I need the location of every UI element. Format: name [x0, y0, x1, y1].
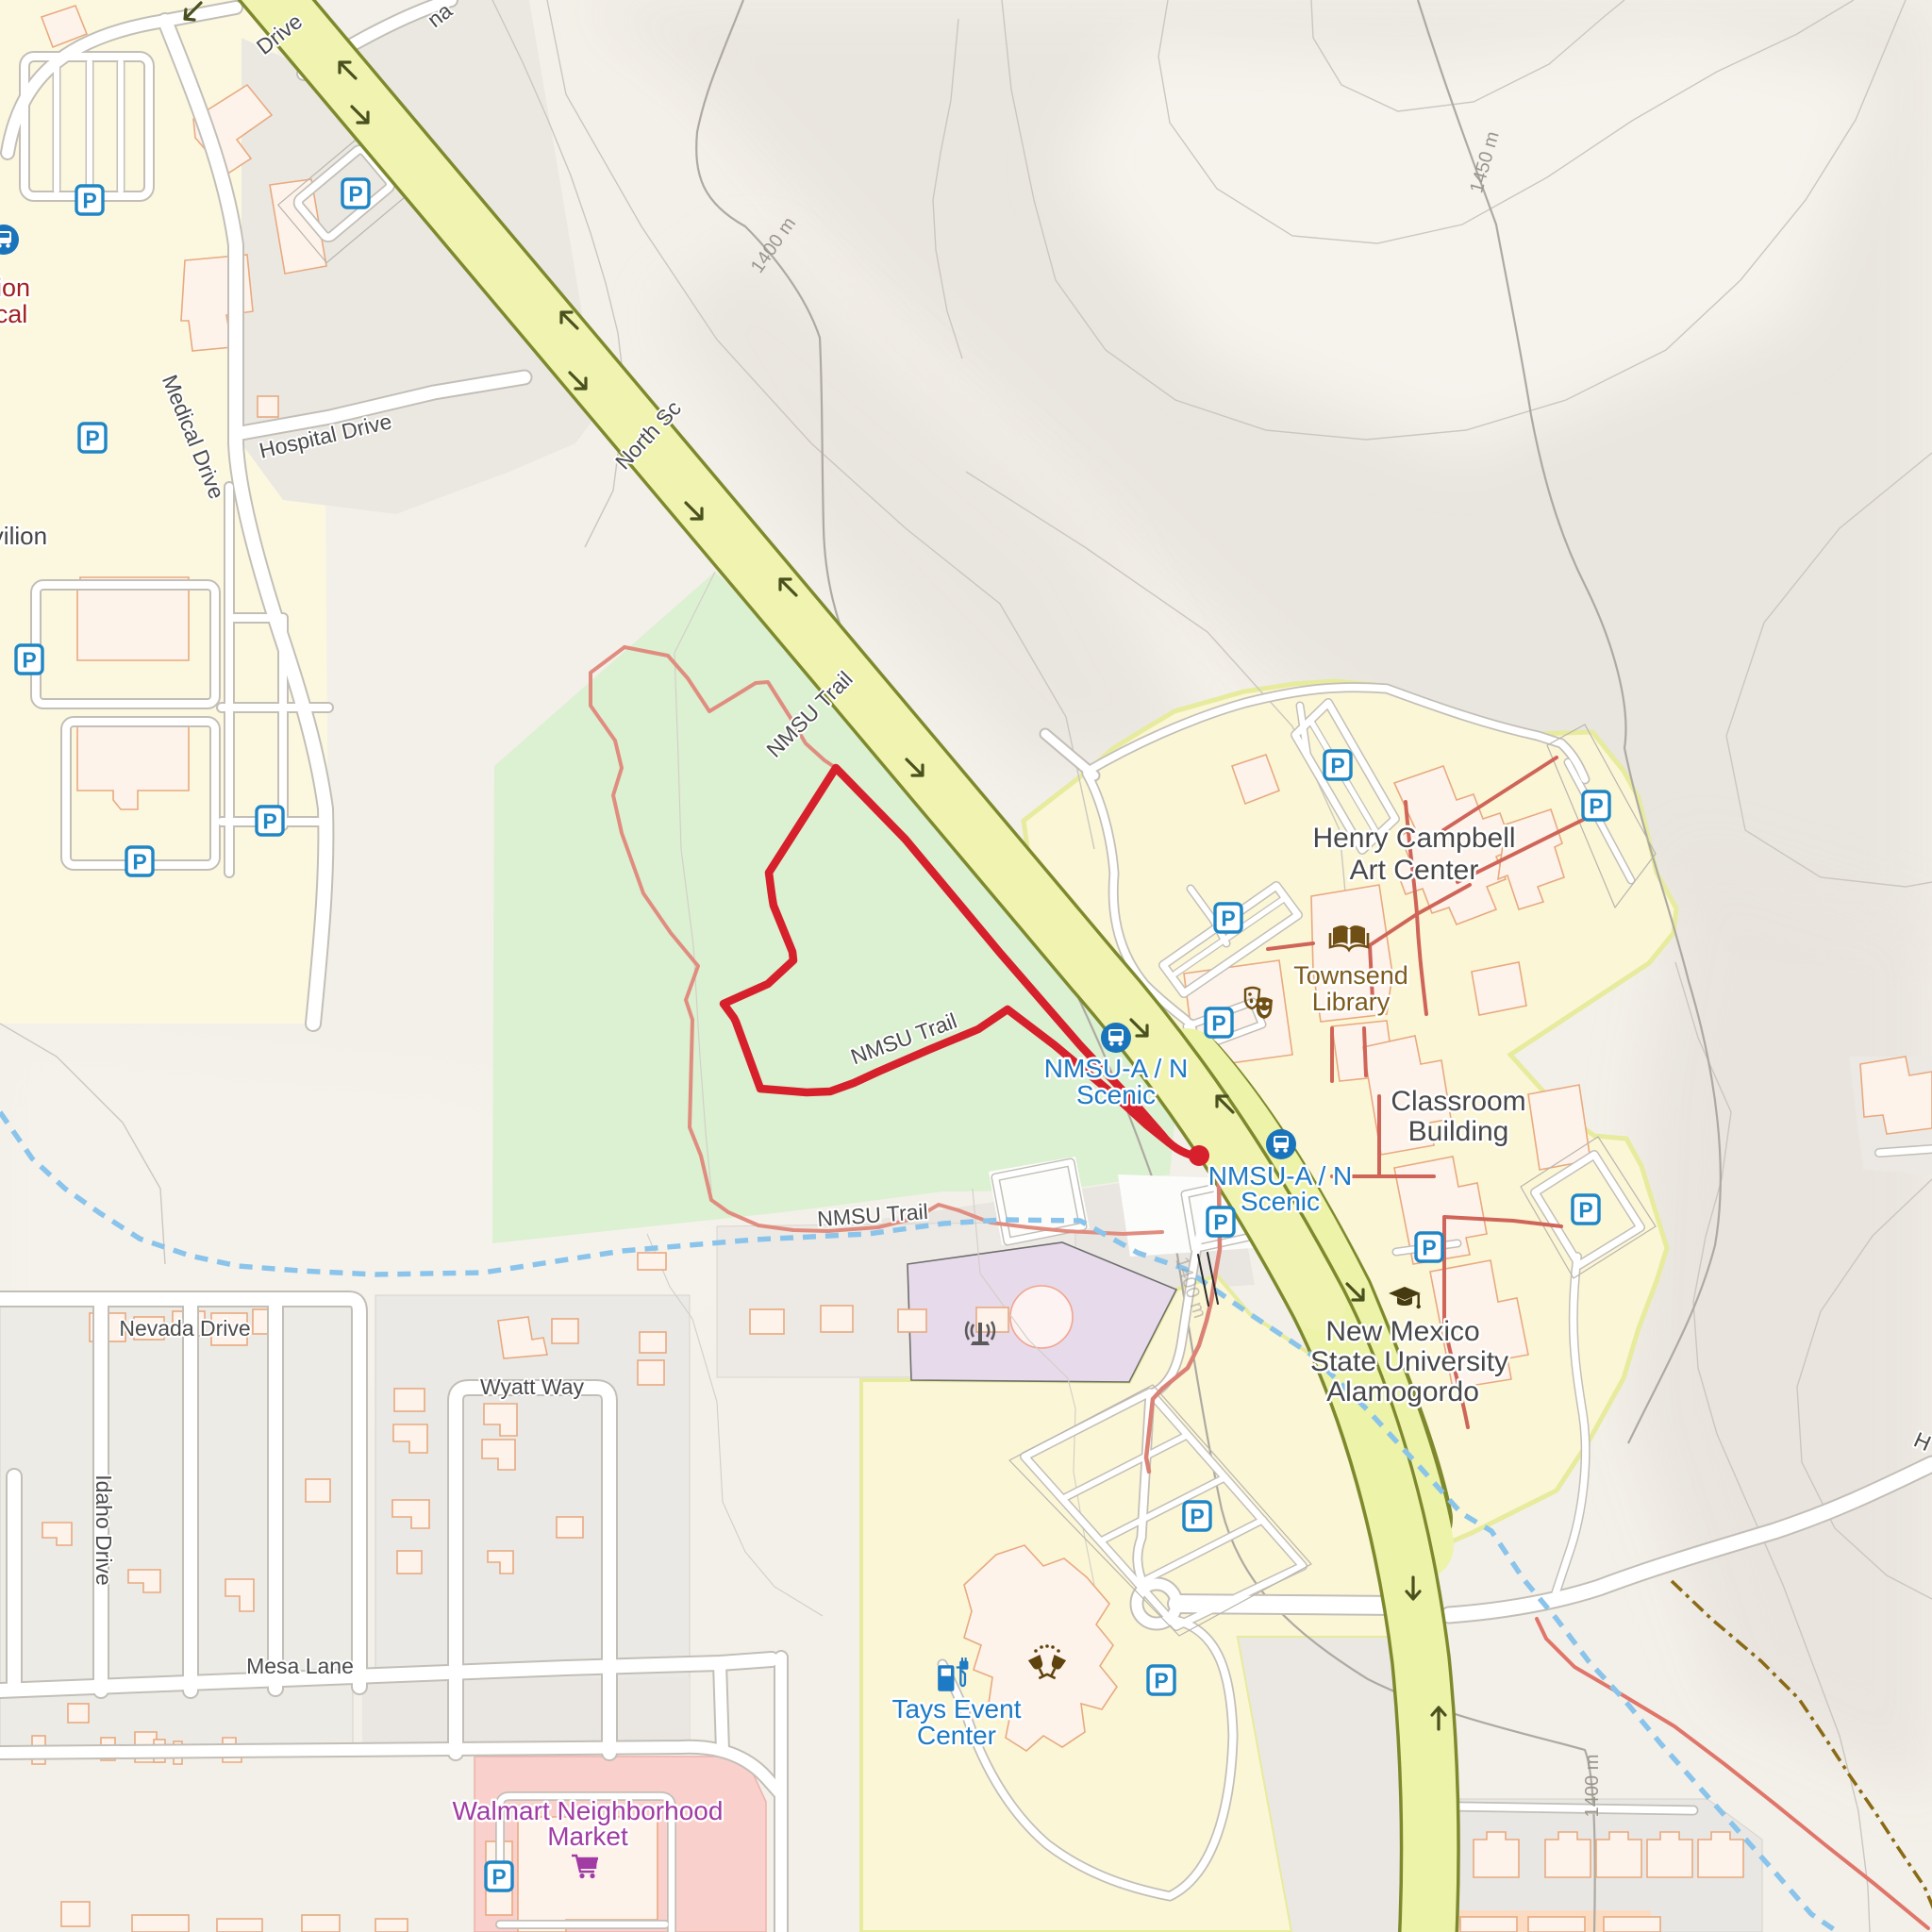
svg-text:ion: ion — [0, 274, 30, 302]
svg-text:Alamogordo: Alamogordo — [1326, 1376, 1479, 1407]
svg-text:Market: Market — [547, 1822, 628, 1851]
svg-text:Scenic: Scenic — [1241, 1187, 1320, 1216]
svg-text:State University: State University — [1310, 1346, 1508, 1377]
svg-text:Henry Campbell: Henry Campbell — [1312, 823, 1515, 854]
svg-text:Classroom: Classroom — [1391, 1086, 1525, 1117]
svg-text:Idaho Drive: Idaho Drive — [92, 1474, 116, 1586]
svg-text:Wyatt Way: Wyatt Way — [480, 1374, 585, 1399]
svg-text:New Mexico: New Mexico — [1325, 1316, 1479, 1347]
svg-text:Art Center: Art Center — [1350, 855, 1479, 886]
svg-text:Center: Center — [917, 1721, 996, 1750]
svg-text:cal: cal — [0, 300, 27, 328]
svg-text:Pavilion: Pavilion — [0, 522, 47, 550]
svg-text:NMSU-A / N: NMSU-A / N — [1044, 1054, 1188, 1083]
svg-text:Townsend: Townsend — [1293, 961, 1408, 990]
svg-text:1400 m: 1400 m — [1582, 1755, 1603, 1818]
svg-text:Tays Event: Tays Event — [892, 1694, 1022, 1724]
svg-text:Building: Building — [1408, 1116, 1509, 1147]
svg-text:Nevada Drive: Nevada Drive — [119, 1316, 250, 1341]
svg-text:Scenic: Scenic — [1076, 1080, 1156, 1109]
svg-text:Library: Library — [1312, 988, 1391, 1016]
svg-text:Mesa Lane: Mesa Lane — [246, 1654, 354, 1678]
